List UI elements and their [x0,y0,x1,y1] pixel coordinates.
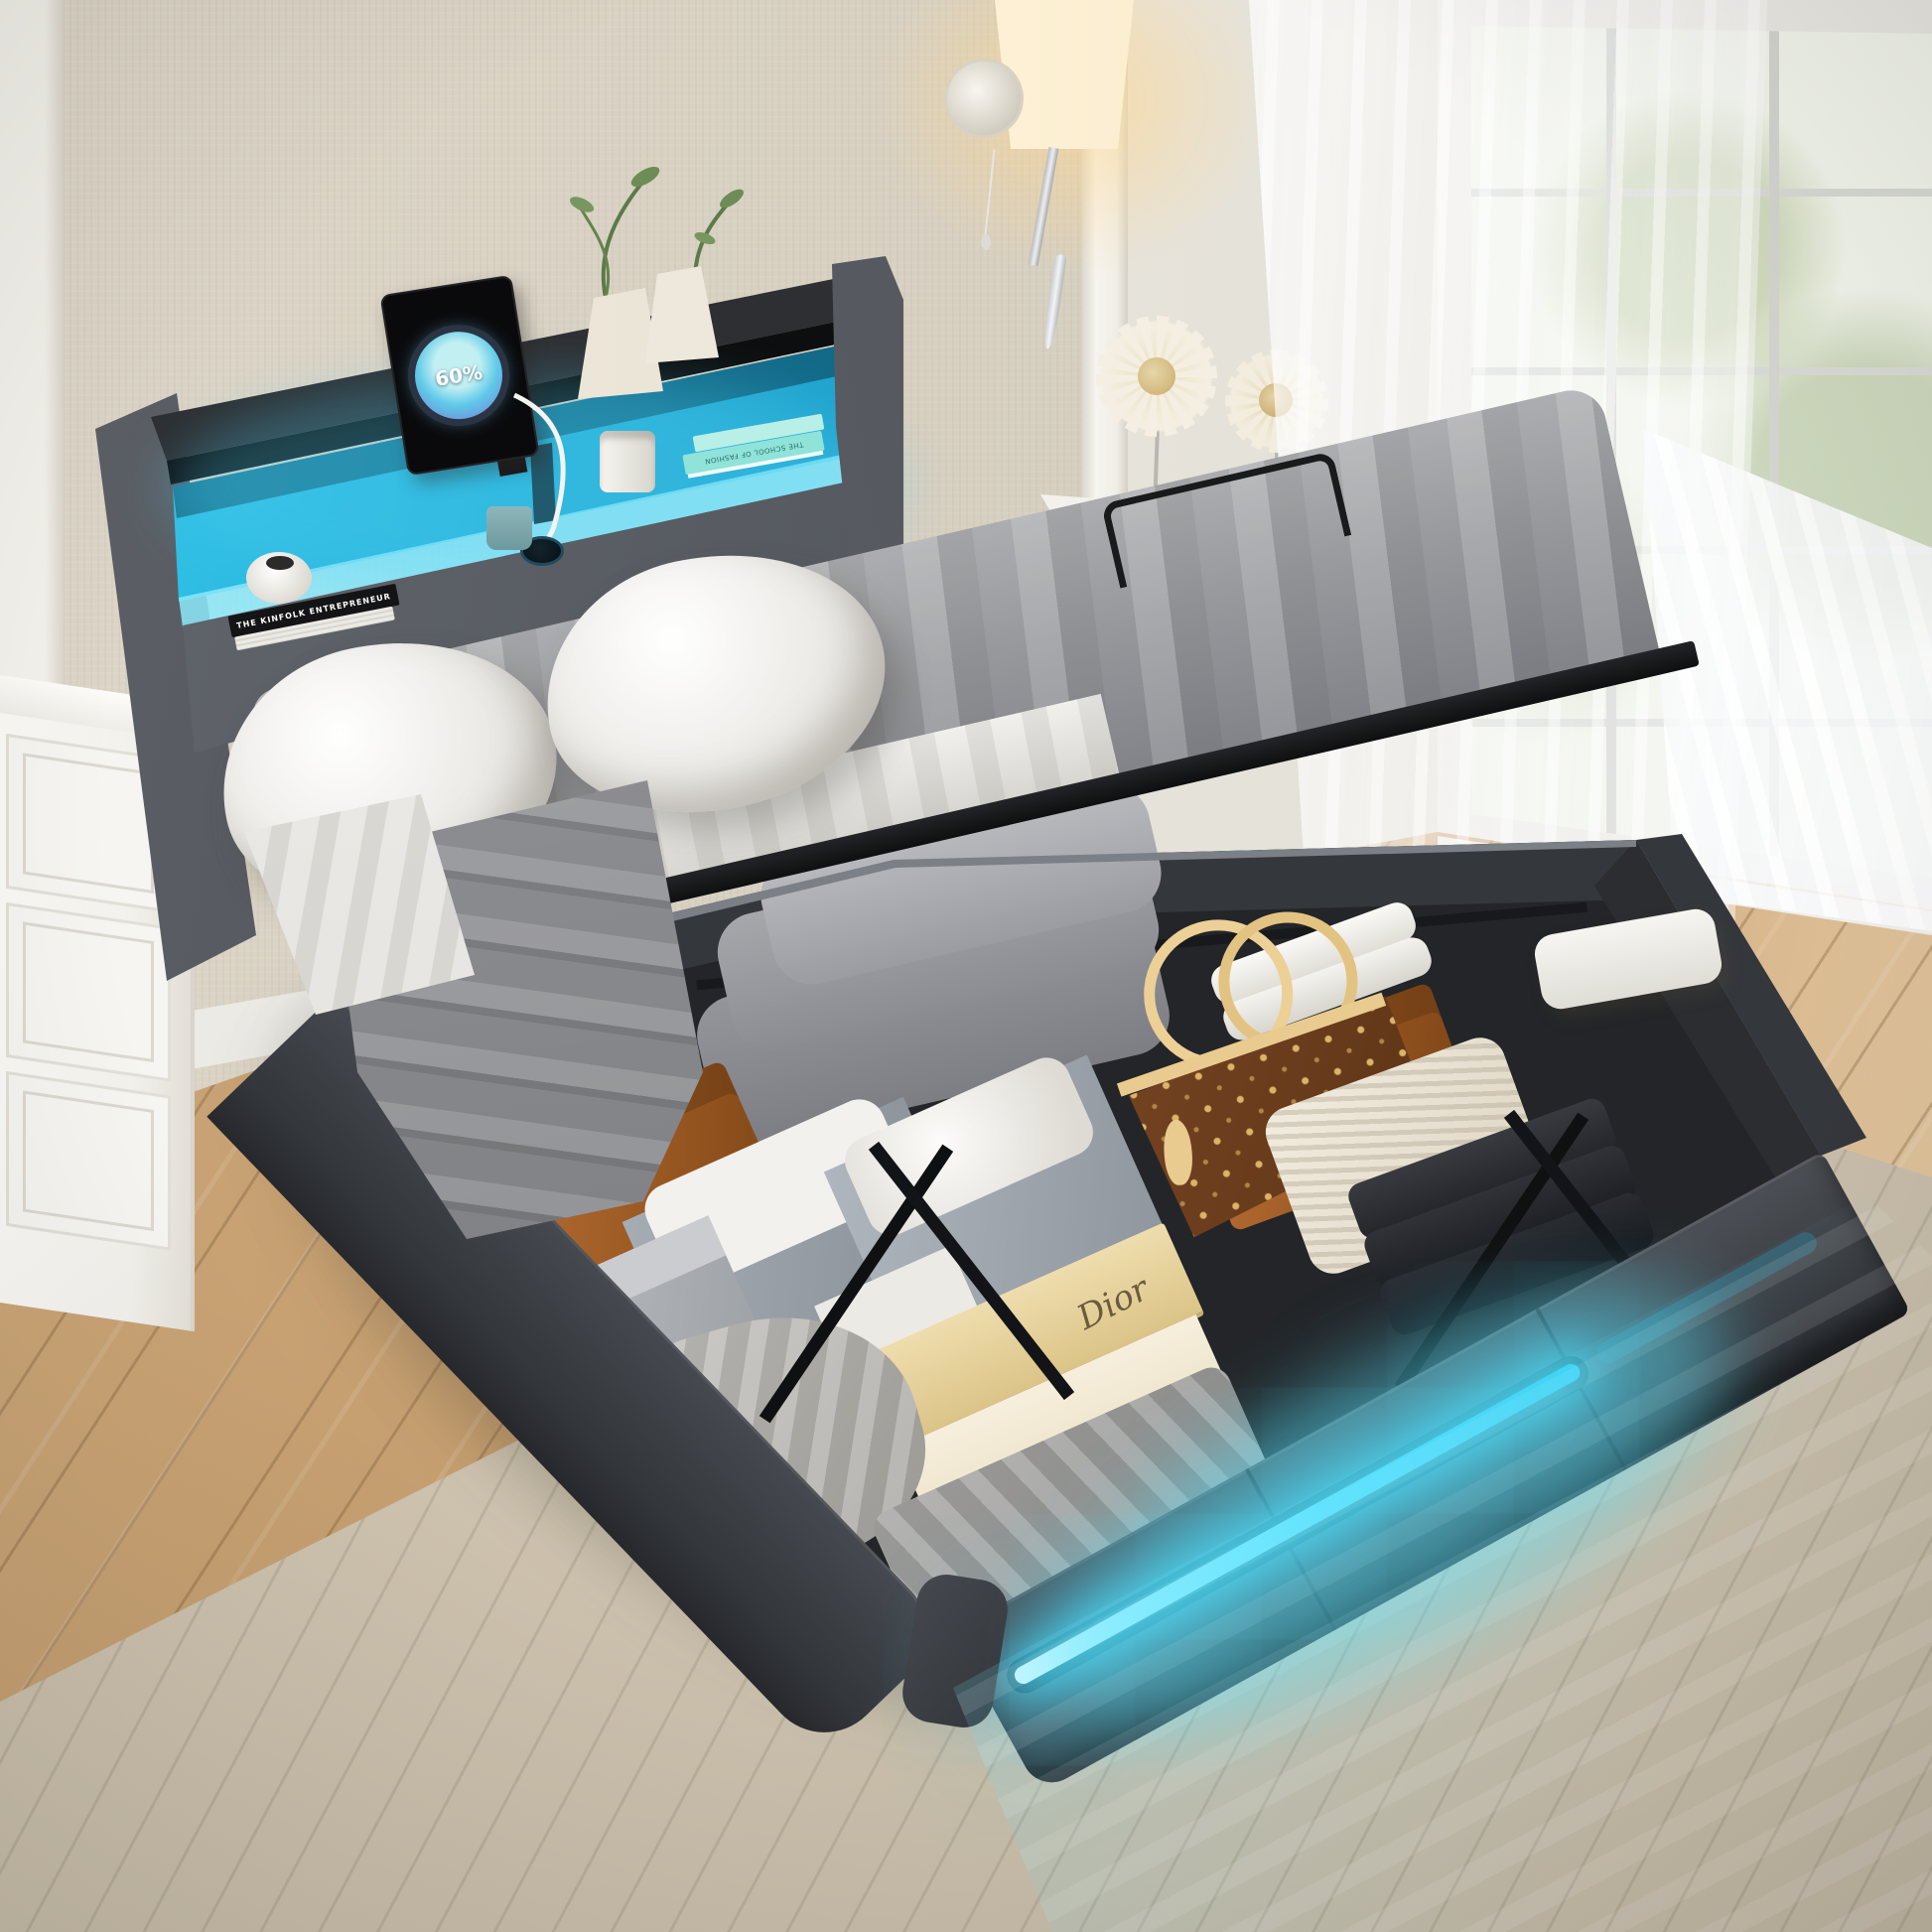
storage-box-white [814,1246,999,1416]
sconce-stem [1029,147,1059,266]
sconce-pull-chain [984,149,995,236]
dior-box-base: Dior [897,1314,1235,1535]
headboard-led-glow [169,377,903,596]
gas-lift-arm [869,1142,1074,1400]
white-cup [600,431,655,492]
base-left-face [207,993,951,1757]
sconce-glow [874,0,1271,278]
towel-stack [1207,898,1421,1009]
handbag-tag [1162,1119,1194,1186]
monogram-handbag [1086,907,1451,1266]
handbag-handle [1126,902,1311,1087]
storage-divider-rail [696,902,1587,990]
charging-tablet: 60% [379,275,539,477]
flower-sculpture [1225,349,1328,453]
handbag-handle [1202,896,1374,1067]
storage-box-gray [622,1097,997,1431]
white-vase-mouth [266,556,294,570]
knit-sweater [1259,1031,1556,1281]
flower-sculpture-center [1259,383,1293,417]
folded-cloth-white [837,1050,1100,1243]
trunk-handle [590,1241,678,1303]
nightstand-drawer [6,1071,171,1251]
handbag-trim [1117,993,1386,1097]
led-strip-groove [1001,1350,1595,1700]
storage-divider-rail [635,988,940,1622]
nightstand-drawer [6,902,171,1082]
gas-lift-arm [759,1145,953,1424]
mattress-retainer-bar [1101,451,1351,589]
white-vase [246,552,312,604]
black-book: THE KINFOLK ENTREPRENEUR [227,584,399,637]
nightstand-drawer [6,734,171,913]
led-strip [1012,1360,1584,1687]
plant-sprigs [536,139,794,338]
flower-sculpture [1096,316,1217,437]
towel-stack [1219,933,1437,1044]
leather-trunk [1176,982,1486,1232]
sconce-chain-pull-tip [981,234,991,250]
towel-stack [388,979,675,1140]
dior-box-label: Dior [1071,1269,1156,1338]
storage-box-gray [824,1055,1175,1372]
towel-stack [372,940,654,1099]
flower-sculpture-center [1138,357,1175,395]
battery-percent-label: 60% [414,356,504,393]
black-book-spine-label: THE KINFOLK ENTREPRENEUR [236,591,392,629]
dark-garment-stack [1360,1142,1639,1291]
dior-box-lid [852,1222,1205,1453]
footboard-seam [1535,1308,1627,1470]
folded-cloth-white [636,1091,916,1296]
platform-frame-edge [304,640,1700,987]
floor-towel [1532,906,1725,1013]
lifted-mattress [248,383,1665,985]
towel-stack [405,1020,696,1182]
dark-garment-stack [1344,1095,1619,1242]
bedroom-product-photo: 60% THE KINFOLK ENTREPRENEUR THE SCHOOL … [0,0,1932,1932]
footboard-seam [1245,1468,1337,1631]
sconce-backplate [944,59,1024,138]
teal-book-spine-label: THE SCHOOL OF FASHION [704,440,804,465]
base-footboard-face [951,1152,1911,1793]
stored-pillow [689,900,1177,1151]
teal-cup [486,506,532,550]
nightstand-top [0,674,191,742]
handbag-body [1103,969,1447,1252]
nightstand [0,674,195,1331]
leather-trunk [423,1060,803,1375]
charging-port [520,536,564,566]
teal-book-stack: THE SCHOOL OF FASHION [682,431,824,475]
mattress-duvet [248,383,1665,985]
storage-box-small [499,1215,793,1498]
tablet-battery-ring: 60% [409,326,509,426]
mattress-sheet [291,694,1120,964]
sconce-crystal-drop [1041,254,1066,350]
gray-garment [583,1283,949,1608]
led-groove-dim [1592,1228,1820,1367]
